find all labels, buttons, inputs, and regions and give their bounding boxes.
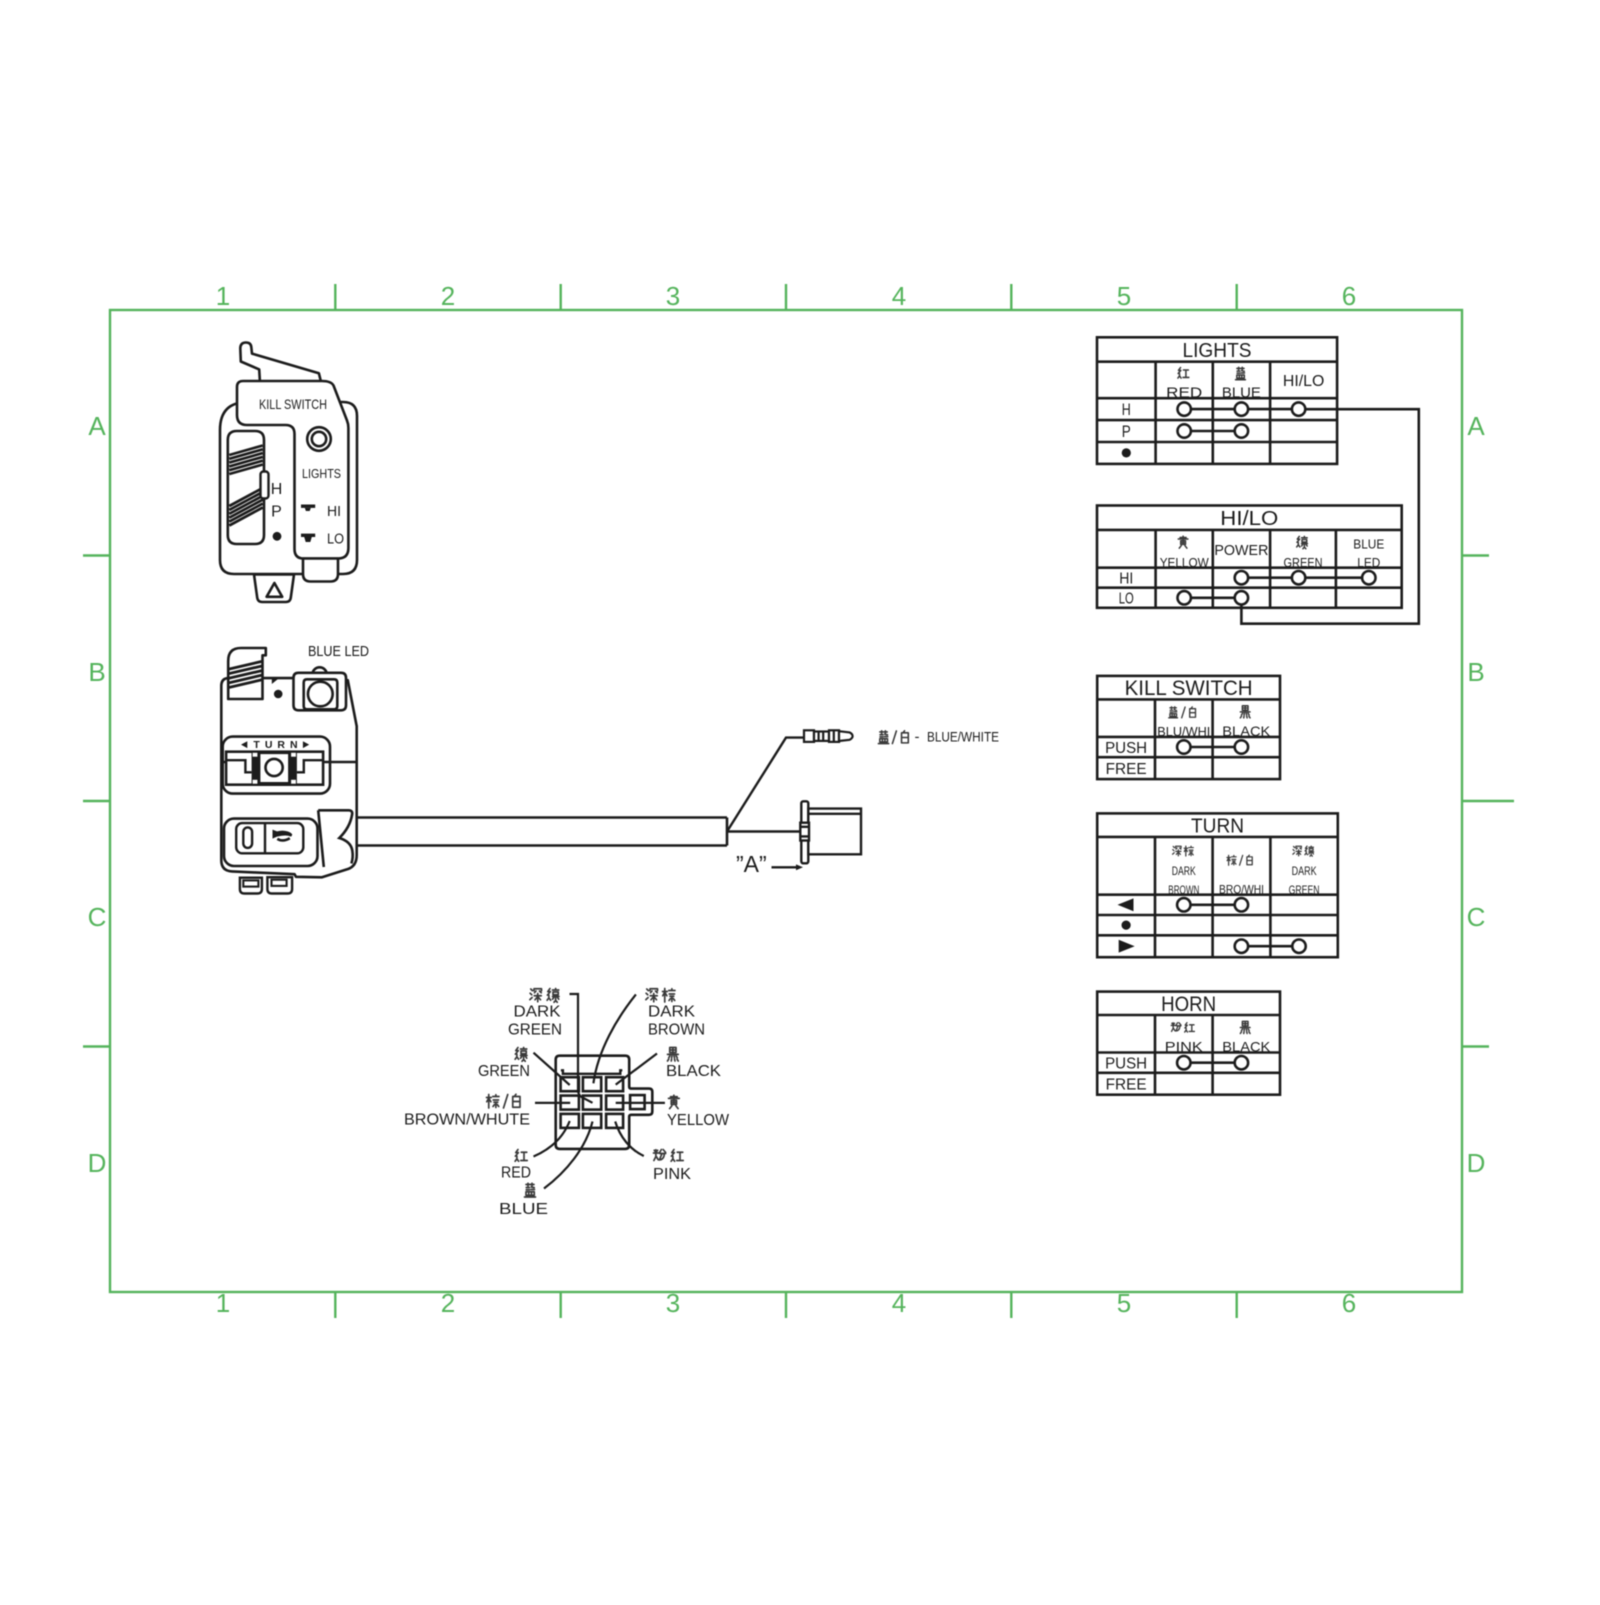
svg-text:C: C (1467, 902, 1486, 932)
svg-text:3: 3 (666, 281, 680, 311)
svg-text:5: 5 (1117, 281, 1131, 311)
svg-text:BROWN: BROWN (648, 1022, 705, 1039)
svg-text:HI/LO: HI/LO (1220, 508, 1278, 530)
svg-text:1: 1 (216, 1288, 230, 1318)
svg-text:YELLOW: YELLOW (667, 1112, 729, 1129)
svg-text:TURN: TURN (1191, 816, 1244, 838)
svg-text:HI: HI (327, 503, 341, 520)
svg-text:1: 1 (216, 281, 230, 311)
svg-text:-: - (915, 729, 920, 746)
svg-text:DARK: DARK (1292, 864, 1317, 878)
svg-text:POWER: POWER (1214, 543, 1268, 559)
svg-text:BRO/WHI: BRO/WHI (1219, 882, 1264, 896)
svg-text:PUSH: PUSH (1105, 1056, 1147, 1073)
svg-text:HORN: HORN (1161, 993, 1216, 1016)
svg-text:BLUE LED: BLUE LED (308, 644, 369, 660)
svg-text:LIGHTS: LIGHTS (302, 466, 341, 481)
svg-text:HI: HI (1119, 571, 1133, 588)
svg-text:DARK: DARK (1172, 864, 1196, 878)
svg-text:FREE: FREE (1106, 1077, 1147, 1094)
svg-text:LO: LO (327, 531, 344, 548)
svg-text:KILL SWITCH: KILL SWITCH (259, 396, 327, 412)
svg-text:B: B (88, 657, 105, 687)
svg-text:BROWN: BROWN (1168, 883, 1199, 897)
svg-text:DARK: DARK (648, 1004, 696, 1021)
svg-text:DARK: DARK (514, 1004, 562, 1021)
svg-text:”A”: ”A” (736, 851, 767, 877)
svg-text:BLACK: BLACK (1222, 723, 1271, 739)
svg-text:BLACK: BLACK (666, 1063, 722, 1080)
svg-text:D: D (1467, 1148, 1486, 1178)
svg-text:GREEN: GREEN (1289, 883, 1320, 897)
svg-text:5: 5 (1117, 1288, 1131, 1318)
svg-text:PUSH: PUSH (1105, 740, 1147, 757)
svg-text:BLUE: BLUE (1222, 384, 1261, 401)
svg-text:2: 2 (441, 1288, 455, 1318)
svg-text:RED: RED (1166, 384, 1202, 401)
svg-text:A: A (1467, 411, 1485, 441)
svg-text:GREEN: GREEN (508, 1022, 562, 1039)
svg-text:GREEN: GREEN (478, 1063, 530, 1080)
svg-text:BROWN/WHUTE: BROWN/WHUTE (404, 1112, 530, 1129)
svg-text:FREE: FREE (1106, 761, 1147, 778)
svg-text:B: B (1467, 657, 1484, 687)
svg-text:D: D (88, 1148, 107, 1178)
svg-text:RED: RED (501, 1165, 531, 1182)
svg-text:BLUE: BLUE (499, 1201, 548, 1218)
svg-text:A: A (88, 411, 106, 441)
svg-text:BLUE: BLUE (1353, 536, 1384, 551)
svg-text:PINK: PINK (653, 1166, 692, 1183)
svg-text:PINK: PINK (1165, 1039, 1204, 1055)
svg-text:LIGHTS: LIGHTS (1183, 339, 1252, 362)
svg-text:LO: LO (1119, 591, 1134, 608)
svg-text:3: 3 (666, 1288, 680, 1318)
svg-text:P: P (1122, 422, 1131, 441)
svg-text:BLUE/WHITE: BLUE/WHITE (927, 730, 999, 745)
svg-text:GREEN: GREEN (1284, 555, 1323, 570)
svg-text:4: 4 (892, 1288, 906, 1318)
svg-text:TURN: TURN (253, 739, 302, 751)
svg-text:2: 2 (441, 281, 455, 311)
svg-text:HI/LO: HI/LO (1283, 373, 1325, 390)
svg-text:YELLOW: YELLOW (1160, 555, 1210, 570)
svg-text:BLU/WHI: BLU/WHI (1157, 725, 1210, 739)
svg-text:P: P (271, 504, 282, 521)
svg-text:BLACK: BLACK (1222, 1039, 1271, 1055)
svg-text:H: H (1122, 400, 1131, 419)
svg-text:C: C (88, 902, 107, 932)
svg-text:6: 6 (1342, 281, 1356, 311)
svg-text:4: 4 (892, 281, 906, 311)
svg-text:H: H (271, 481, 283, 498)
svg-text:LED: LED (1357, 555, 1380, 570)
svg-text:KILL SWITCH: KILL SWITCH (1125, 677, 1253, 700)
svg-text:6: 6 (1342, 1288, 1356, 1318)
